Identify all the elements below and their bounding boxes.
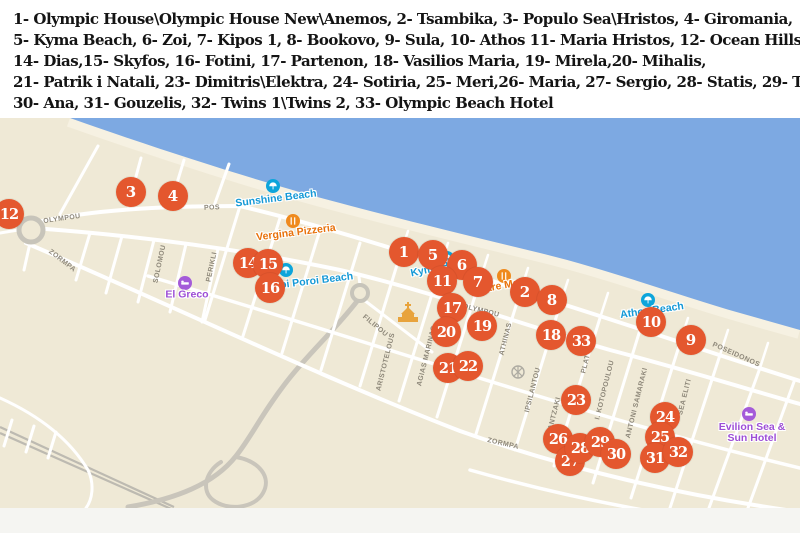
map-viewport[interactable]: OLYMPOUZORMPAPOSSOLOMOUPERIKLIFILIPOUARI… bbox=[0, 118, 800, 508]
map-marker-20[interactable]: 20 bbox=[431, 317, 461, 347]
map-marker-10[interactable]: 10 bbox=[636, 307, 666, 337]
map-marker-33[interactable]: 33 bbox=[566, 326, 596, 356]
map-marker-8[interactable]: 8 bbox=[537, 285, 567, 315]
map-marker-18[interactable]: 18 bbox=[536, 320, 566, 350]
map-marker-30[interactable]: 30 bbox=[601, 439, 631, 469]
screenshot-root: 1- Olympic House\Olympic House New\Anemo… bbox=[0, 0, 800, 533]
legend-line-1: 1- Olympic House\Olympic House New\Anemo… bbox=[13, 9, 800, 30]
map-marker-23[interactable]: 23 bbox=[561, 385, 591, 415]
markers-layer: 1234567891011121415161718192021222324252… bbox=[0, 118, 800, 508]
legend-line-2: 5- Kyma Beach, 6- Zoi, 7- Kipos 1, 8- Bo… bbox=[13, 30, 800, 51]
bottom-strip bbox=[0, 508, 800, 533]
map-marker-12[interactable]: 12 bbox=[0, 199, 24, 229]
map-marker-22[interactable]: 22 bbox=[453, 351, 483, 381]
map-marker-32[interactable]: 32 bbox=[663, 437, 693, 467]
legend-line-3: 14- Dias,15- Skyfos, 16- Fotini, 17- Par… bbox=[13, 51, 800, 72]
map-marker-16[interactable]: 16 bbox=[255, 273, 285, 303]
map-marker-1[interactable]: 1 bbox=[389, 237, 419, 267]
legend-panel: 1- Olympic House\Olympic House New\Anemo… bbox=[0, 0, 800, 118]
map-marker-11[interactable]: 11 bbox=[427, 266, 457, 296]
map-marker-7[interactable]: 7 bbox=[463, 267, 493, 297]
legend-line-4: 21- Patrik i Natali, 23- Dimitris\Elektr… bbox=[13, 72, 800, 93]
map-marker-4[interactable]: 4 bbox=[158, 181, 188, 211]
map-marker-19[interactable]: 19 bbox=[467, 311, 497, 341]
map-marker-3[interactable]: 3 bbox=[116, 177, 146, 207]
map-marker-9[interactable]: 9 bbox=[676, 325, 706, 355]
map-marker-2[interactable]: 2 bbox=[510, 277, 540, 307]
legend-line-5: 30- Ana, 31- Gouzelis, 32- Twins 1\Twins… bbox=[13, 93, 800, 114]
